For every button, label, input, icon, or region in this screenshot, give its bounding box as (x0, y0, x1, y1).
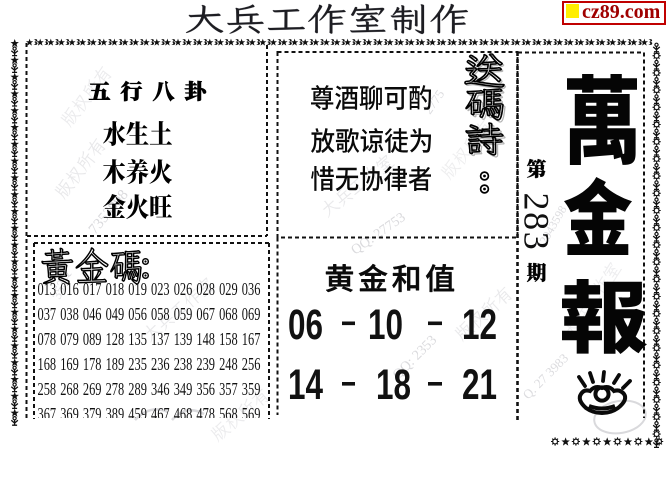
svg-text:389: 389 (106, 404, 125, 424)
svg-text:058: 058 (151, 304, 170, 324)
svg-text:379: 379 (83, 404, 102, 424)
svg-text:135: 135 (128, 329, 147, 349)
svg-text:239: 239 (196, 354, 215, 374)
svg-text:10: 10 (368, 301, 403, 349)
svg-text:349: 349 (174, 379, 193, 399)
svg-text:067: 067 (196, 304, 215, 324)
svg-text:158: 158 (219, 329, 238, 349)
svg-text:346: 346 (151, 379, 170, 399)
svg-text:467: 467 (151, 404, 170, 424)
svg-text:278: 278 (106, 379, 125, 399)
svg-text:235: 235 (128, 354, 147, 374)
svg-text:068: 068 (219, 304, 238, 324)
svg-text:167: 167 (242, 329, 261, 349)
svg-text:168: 168 (38, 354, 57, 374)
svg-text:059: 059 (174, 304, 193, 324)
svg-text:128: 128 (106, 329, 125, 349)
svg-text:018: 018 (106, 279, 125, 299)
svg-text:356: 356 (196, 379, 215, 399)
svg-text:019: 019 (128, 279, 147, 299)
svg-text:283: 283 (517, 193, 557, 252)
svg-text:478: 478 (196, 404, 215, 424)
svg-text:357: 357 (219, 379, 238, 399)
svg-text:459: 459 (128, 404, 147, 424)
svg-text:028: 028 (196, 279, 215, 299)
svg-text:12: 12 (462, 301, 497, 349)
svg-text:169: 169 (60, 354, 79, 374)
svg-text:289: 289 (128, 379, 147, 399)
svg-text:236: 236 (151, 354, 170, 374)
svg-text:569: 569 (242, 404, 261, 424)
svg-text:016: 016 (60, 279, 79, 299)
svg-text:056: 056 (128, 304, 147, 324)
svg-text:026: 026 (174, 279, 193, 299)
svg-text:14: 14 (288, 361, 323, 409)
svg-text:QQ: 27753: QQ: 27753 (349, 210, 409, 258)
svg-text:078: 078 (38, 329, 57, 349)
svg-text:139: 139 (174, 329, 193, 349)
svg-text:017: 017 (83, 279, 102, 299)
svg-text:013: 013 (38, 279, 57, 299)
svg-text:189: 189 (106, 354, 125, 374)
svg-text:178: 178 (83, 354, 102, 374)
svg-text:369: 369 (60, 404, 79, 424)
svg-text:046: 046 (83, 304, 102, 324)
svg-text:367: 367 (38, 404, 57, 424)
svg-text:18: 18 (376, 361, 411, 409)
svg-text:037: 037 (38, 304, 57, 324)
svg-text:079: 079 (60, 329, 79, 349)
svg-text:036: 036 (242, 279, 261, 299)
svg-text:089: 089 (83, 329, 102, 349)
svg-text:038: 038 (60, 304, 79, 324)
svg-text:256: 256 (242, 354, 261, 374)
svg-text:029: 029 (219, 279, 238, 299)
svg-text:468: 468 (174, 404, 193, 424)
svg-text:268: 268 (60, 379, 79, 399)
svg-text:148: 148 (196, 329, 215, 349)
svg-text:069: 069 (242, 304, 261, 324)
svg-text:21: 21 (462, 361, 497, 409)
svg-text:359: 359 (242, 379, 261, 399)
svg-text:06: 06 (288, 301, 323, 349)
svg-text:269: 269 (83, 379, 102, 399)
svg-text:248: 248 (219, 354, 238, 374)
svg-text:049: 049 (106, 304, 125, 324)
svg-text:Q. 27 3983: Q. 27 3983 (520, 350, 572, 402)
svg-text:238: 238 (174, 354, 193, 374)
svg-text:023: 023 (151, 279, 170, 299)
svg-text:137: 137 (151, 329, 170, 349)
svg-text:258: 258 (38, 379, 57, 399)
